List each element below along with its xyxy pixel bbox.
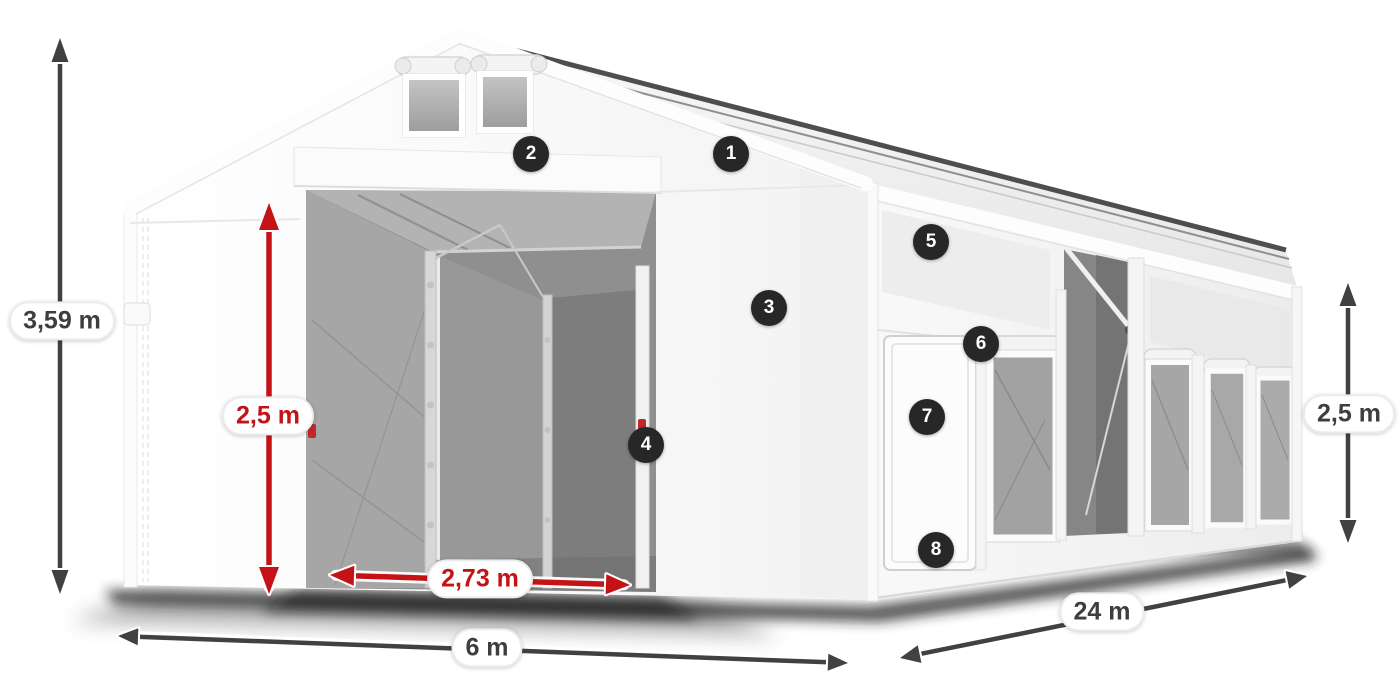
tent-illustration (0, 0, 1400, 700)
interior-steel-post (425, 251, 436, 588)
side-window-3 (1204, 359, 1250, 525)
door-width-label: 2,73 m (427, 559, 533, 598)
part-badge-2: 2 (513, 136, 549, 172)
part-badge-7: 7 (909, 399, 945, 435)
part-badge-1: 1 (713, 136, 749, 172)
interior-partition-doorway (551, 290, 636, 586)
gable-window-1 (403, 74, 465, 137)
front-width-label: 6 m (451, 628, 522, 667)
part-badge-5: 5 (913, 224, 949, 260)
interior-mesh-wall (306, 190, 431, 588)
side-open-doorway (1064, 248, 1144, 536)
part-badge-8: 8 (918, 532, 954, 568)
side-window-1 (984, 336, 1062, 542)
total-height-label: 3,59 m (9, 301, 115, 340)
inner-door-height-label: 2,5 m (222, 396, 314, 435)
gable-window-2 (477, 71, 533, 133)
part-badge-3: 3 (751, 290, 787, 326)
side-wall-height-label: 2,5 m (1303, 394, 1395, 433)
interior-door-leaf (437, 255, 543, 586)
part-badge-4: 4 (628, 427, 664, 463)
front-opening (306, 190, 656, 592)
side-window-2 (1144, 349, 1196, 531)
side-length-label: 24 m (1060, 592, 1145, 631)
tent-dimension-diagram: 3,59 m 2,5 m 2,73 m 6 m 24 m 2,5 m 1 2 3… (0, 0, 1400, 700)
side-window-4 (1254, 367, 1296, 522)
part-badge-6: 6 (963, 326, 999, 362)
